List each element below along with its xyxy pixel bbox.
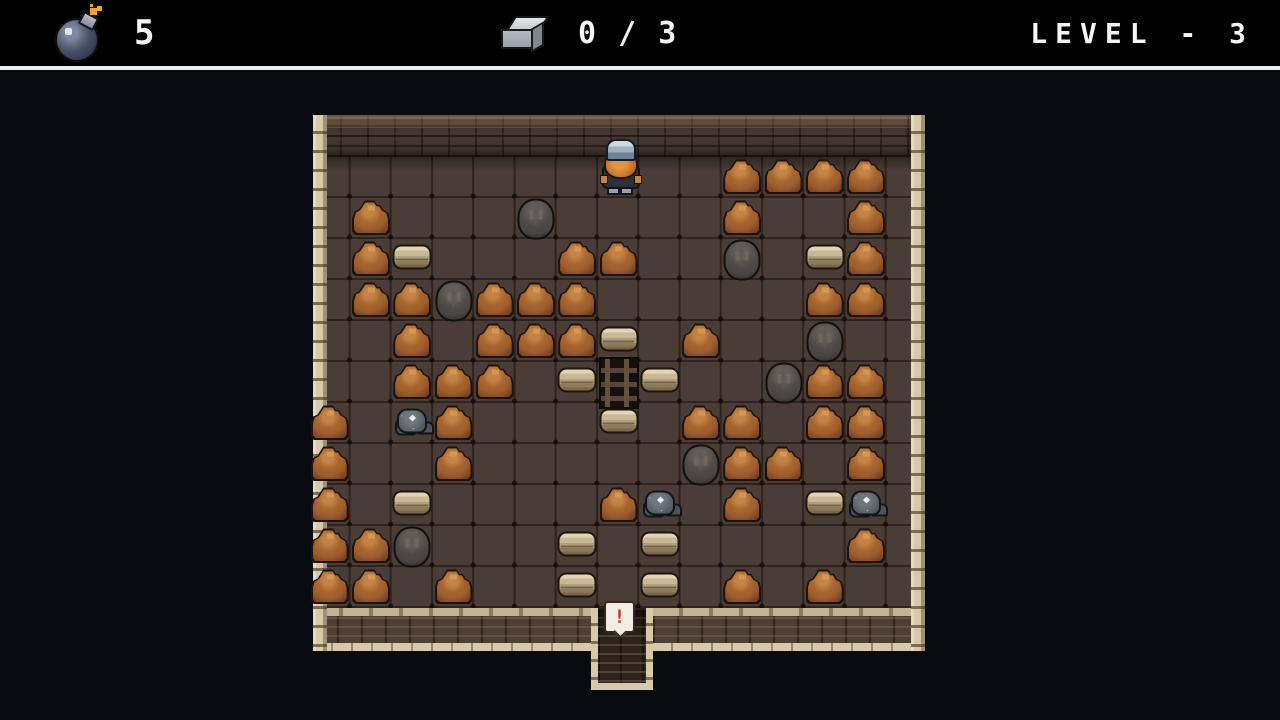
wall-bottom-right <box>653 608 911 651</box>
stone-slab <box>393 244 432 269</box>
stone-slab <box>558 531 597 556</box>
bomb-glint <box>65 28 72 35</box>
hud-divider <box>0 66 1280 70</box>
ore-chunk <box>642 489 678 516</box>
level-label: LEVEL - 3 <box>1030 17 1254 50</box>
bomb-spark <box>90 8 97 15</box>
ore-chunk <box>394 407 430 434</box>
stone-slab <box>805 490 844 515</box>
stone-slab <box>558 367 597 392</box>
stone-slab <box>640 367 679 392</box>
hud-bar: 5 0 / 3 LEVEL - 3 <box>0 0 1280 66</box>
game-screen: 5 0 / 3 LEVEL - 3 ! <box>0 0 1280 720</box>
exit-alert-text: ! <box>614 608 625 627</box>
stone-slab <box>805 244 844 269</box>
boulder <box>518 198 555 239</box>
level-indicator: LEVEL - 3 <box>1030 0 1254 66</box>
boulder <box>394 526 431 567</box>
boulder <box>435 280 472 321</box>
stone-slab <box>599 326 638 351</box>
stone-slab <box>599 408 638 433</box>
ladder <box>599 357 639 409</box>
corridor-left-rail <box>591 608 598 690</box>
bomb-icon <box>54 6 100 60</box>
stone-slab <box>640 572 679 597</box>
bomb-counter: 5 <box>54 6 154 60</box>
ladder-rungs <box>601 359 637 407</box>
stone-slab <box>640 531 679 556</box>
ingot-front-face <box>501 29 533 49</box>
exit-alert-bubble: ! <box>604 601 635 633</box>
boulder <box>765 362 802 403</box>
stone-slab <box>558 572 597 597</box>
ore-counter: 0 / 3 <box>498 12 678 54</box>
corridor-bottom-cap <box>591 683 653 690</box>
boulder <box>683 444 720 485</box>
metal-ingot-icon <box>498 12 546 54</box>
player-helmet <box>606 139 636 161</box>
wall-bottom-left <box>313 608 591 651</box>
corridor-right-rail <box>646 608 653 690</box>
stone-slab <box>393 490 432 515</box>
player <box>598 139 640 197</box>
wall-right <box>911 115 925 651</box>
boulder <box>724 239 761 280</box>
bomb-count: 5 <box>134 13 154 53</box>
boulder <box>806 321 843 362</box>
ore-chunk <box>848 489 884 516</box>
ore-progress: 0 / 3 <box>578 16 678 51</box>
